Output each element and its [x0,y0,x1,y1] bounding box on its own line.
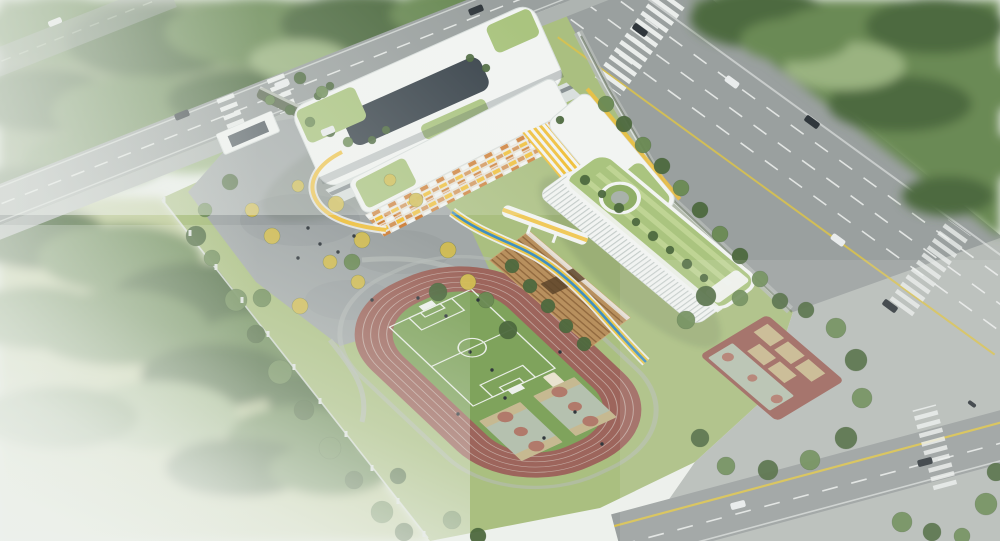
tree [505,259,519,273]
tree [654,158,670,174]
tree [614,203,624,213]
tree [712,226,728,242]
tree [666,246,674,254]
person [542,436,545,439]
tree-mass [740,18,850,62]
person [490,368,493,371]
person [573,410,576,413]
tree [541,299,555,313]
tree [577,337,591,351]
tree [478,292,494,308]
left-haze-veil [0,0,260,541]
campus-aerial-render [0,0,1000,541]
person [558,350,561,353]
campus-render-stage [0,0,1000,541]
person [600,442,603,445]
tree [648,231,658,241]
tree [616,116,632,132]
right-haze [620,260,1000,541]
tree [499,321,517,339]
person [503,396,506,399]
tree [470,528,486,541]
tree-mass [902,176,994,216]
tree [559,319,573,333]
tree [598,96,614,112]
tree [632,218,640,226]
person [476,298,479,301]
tree [692,202,708,218]
tree [598,190,606,198]
tree [523,279,537,293]
tree [673,180,689,196]
tree [635,137,651,153]
tree [580,175,590,185]
